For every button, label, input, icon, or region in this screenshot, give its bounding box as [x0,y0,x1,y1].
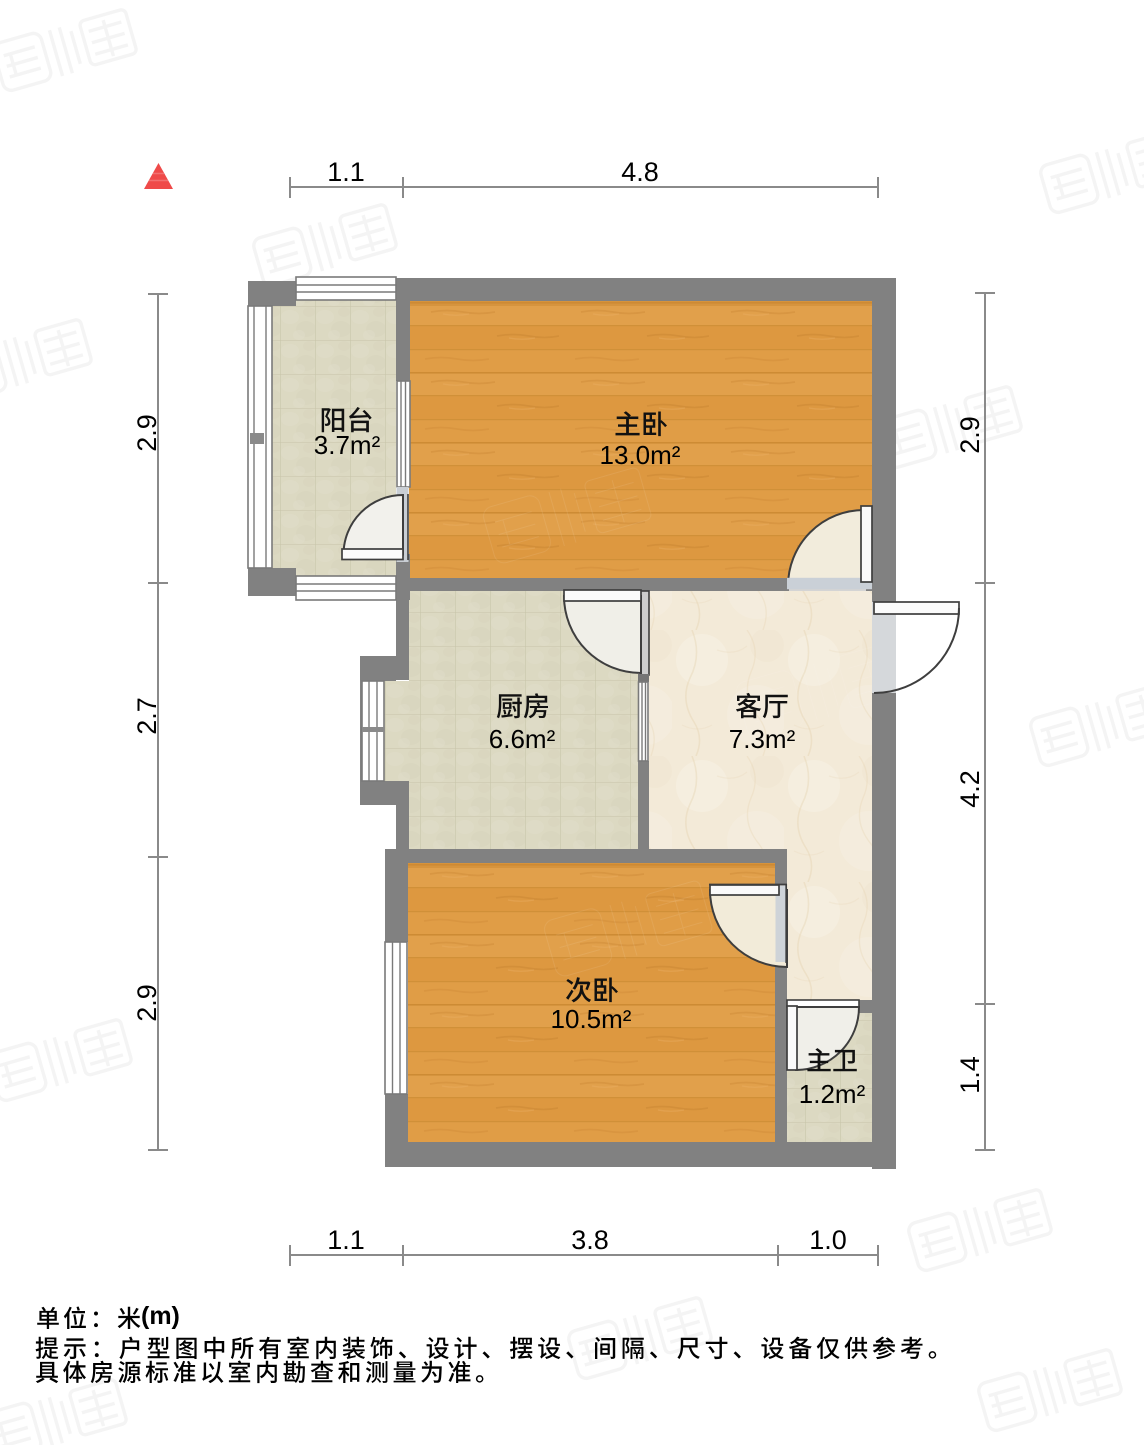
svg-text:(m): (m) [141,1302,180,1330]
svg-text:10.5m²: 10.5m² [551,1004,632,1034]
svg-text:2.7: 2.7 [132,697,162,735]
svg-text:3.8: 3.8 [571,1225,609,1255]
svg-text:1.0: 1.0 [809,1225,847,1255]
svg-text:4.2: 4.2 [955,770,985,808]
svg-text:4.8: 4.8 [621,157,659,187]
svg-text:2.9: 2.9 [132,984,162,1022]
svg-text:7.3m²: 7.3m² [729,724,796,754]
svg-text:13.0m²: 13.0m² [600,440,681,470]
svg-text:2.9: 2.9 [132,414,162,452]
svg-text:1.1: 1.1 [327,157,365,187]
svg-text:3.7m²: 3.7m² [314,430,381,460]
svg-text:6.6m²: 6.6m² [489,724,556,754]
svg-text:1.4: 1.4 [955,1056,985,1094]
svg-text:1.1: 1.1 [327,1225,365,1255]
svg-text:1.2m²: 1.2m² [799,1079,866,1109]
svg-text:2.9: 2.9 [955,416,985,454]
